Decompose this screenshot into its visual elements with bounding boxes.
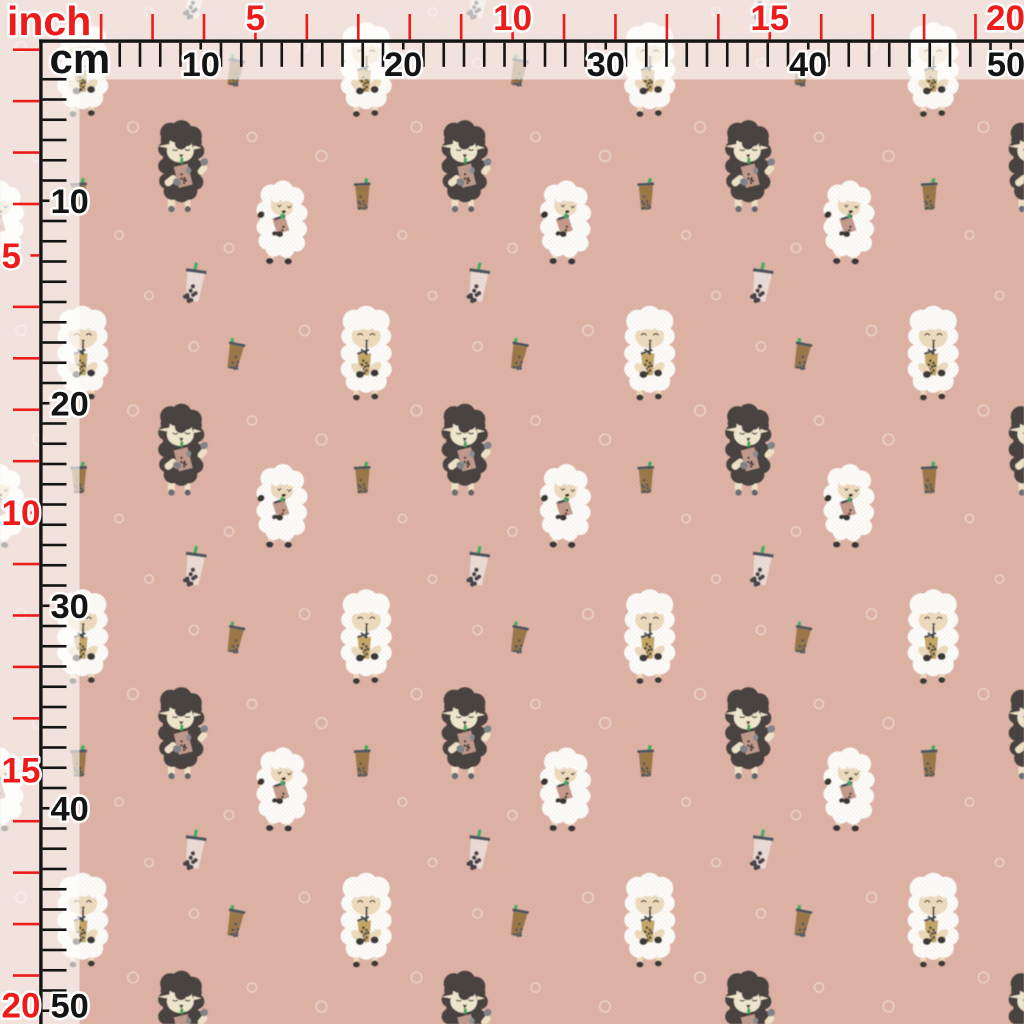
svg-text:50: 50: [987, 46, 1024, 84]
svg-text:15: 15: [750, 0, 789, 38]
svg-text:10: 10: [2, 494, 41, 533]
svg-text:10: 10: [51, 183, 89, 221]
svg-text:5: 5: [246, 0, 265, 38]
svg-text:cm: cm: [50, 35, 111, 82]
svg-text:20: 20: [986, 0, 1024, 38]
svg-text:10: 10: [182, 46, 220, 84]
svg-text:5: 5: [2, 237, 21, 276]
svg-text:40: 40: [789, 46, 827, 84]
svg-text:10: 10: [493, 0, 532, 38]
svg-text:20: 20: [2, 987, 41, 1024]
svg-text:20: 20: [384, 46, 422, 84]
svg-text:40: 40: [51, 791, 89, 829]
svg-text:50: 50: [51, 987, 89, 1024]
svg-text:30: 30: [51, 588, 89, 626]
svg-text:30: 30: [587, 46, 625, 84]
svg-text:20: 20: [51, 386, 89, 424]
svg-text:15: 15: [2, 751, 41, 790]
